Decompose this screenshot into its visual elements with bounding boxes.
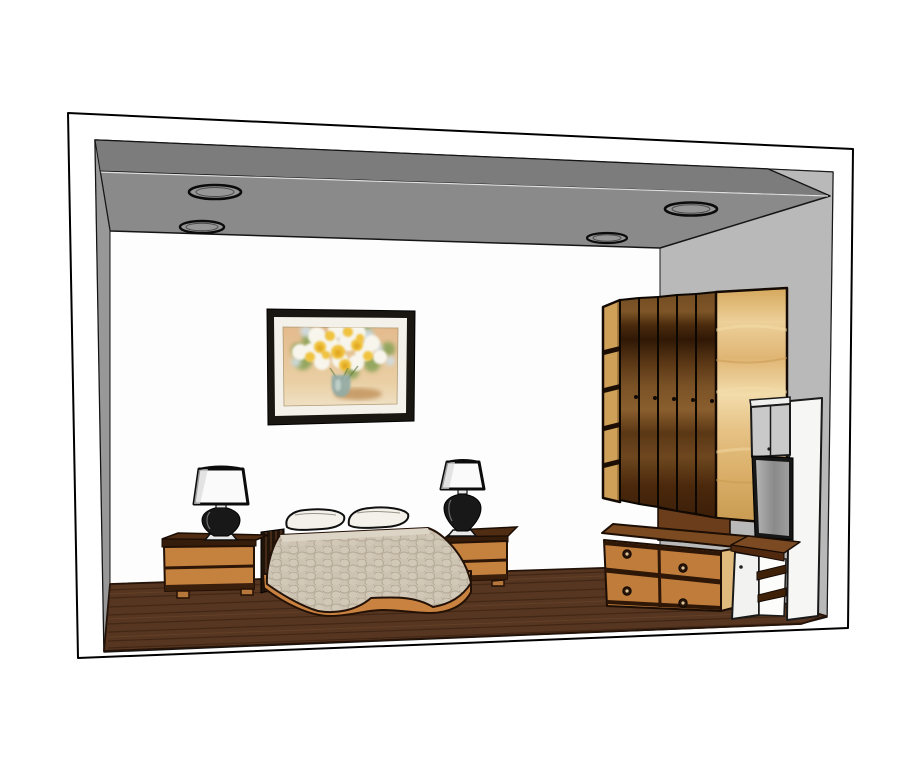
knob-center (681, 566, 684, 569)
room-render-canvas (0, 0, 905, 760)
wardrobe-door (658, 295, 677, 511)
open-shelf-compartment (759, 556, 786, 616)
drawer-separator (164, 566, 254, 568)
lower-cabinet-left-panel (732, 552, 759, 619)
nightstand-foot (177, 591, 189, 598)
vase (331, 375, 350, 397)
wall-painting (267, 309, 415, 425)
pillow-right (349, 507, 409, 528)
knob-center (625, 552, 628, 555)
cabinet-handle (767, 447, 770, 450)
nightstand-foot (492, 580, 504, 586)
vase-highlight (335, 379, 341, 391)
wardrobe-door (696, 292, 716, 518)
nightstand-foot (241, 589, 253, 595)
knob-center (681, 601, 684, 604)
tv-screen (756, 460, 789, 536)
wardrobe-door (620, 298, 639, 504)
knob-center (625, 589, 628, 592)
wardrobe-door (639, 297, 658, 507)
wardrobe-doors (620, 292, 716, 518)
pillow-left (286, 509, 344, 530)
bedroom-3d-scene (0, 0, 905, 760)
lower-cabinet-knob (739, 565, 743, 569)
wardrobe-door (677, 294, 696, 514)
lamp-body (202, 507, 240, 536)
nightstand-left (162, 533, 268, 598)
